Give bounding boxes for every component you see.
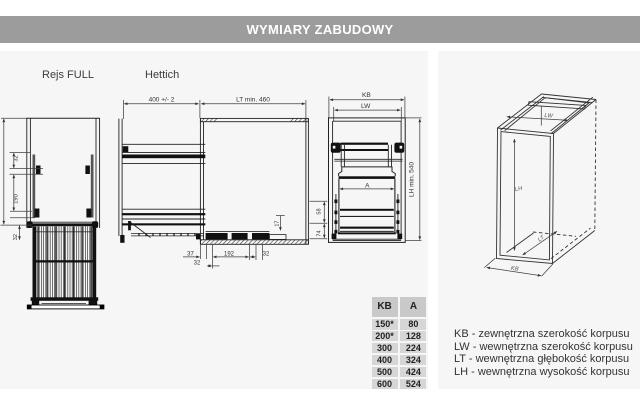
svg-text:400 +/- 2: 400 +/- 2 [149, 97, 175, 104]
svg-text:LW: LW [361, 103, 371, 110]
svg-text:32: 32 [13, 234, 19, 240]
svg-text:32: 32 [194, 260, 201, 266]
svg-text:37: 37 [187, 251, 194, 257]
svg-text:A: A [365, 182, 370, 189]
svg-text:KB: KB [362, 92, 371, 99]
svg-text:74: 74 [317, 230, 323, 236]
svg-text:192: 192 [224, 251, 235, 257]
svg-text:58: 58 [317, 208, 323, 214]
svg-text:LT: LT [537, 235, 546, 244]
svg-text:LH: LH [515, 186, 524, 194]
svg-text:32: 32 [13, 155, 19, 161]
svg-text:17: 17 [275, 221, 281, 227]
svg-text:LT min. 460: LT min. 460 [236, 97, 270, 104]
svg-text:LW: LW [544, 113, 553, 120]
svg-text:32: 32 [263, 251, 270, 257]
svg-text:190: 190 [13, 194, 19, 204]
svg-text:LH min. 540: LH min. 540 [409, 162, 416, 197]
svg-text:KB: KB [510, 266, 519, 273]
